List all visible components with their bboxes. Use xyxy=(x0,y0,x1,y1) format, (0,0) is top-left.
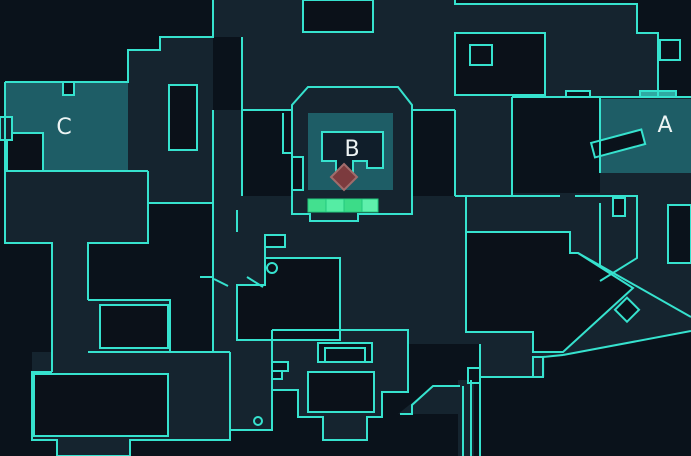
c-annex-pillar xyxy=(169,85,197,150)
walkable-area-0 xyxy=(213,0,658,110)
spawn-crate-1 xyxy=(272,362,288,371)
a-hook-box xyxy=(613,198,625,216)
alink-obstacle xyxy=(455,33,545,95)
minimap-panel: CBA xyxy=(0,0,691,456)
mid-wall-box xyxy=(265,235,285,247)
green-crate-1 xyxy=(326,199,344,212)
fountain-outer xyxy=(318,343,372,362)
walkable-area-8 xyxy=(455,110,512,196)
b-left-box xyxy=(292,157,303,190)
spawn-crate-2 xyxy=(272,371,282,379)
green-crate-3 xyxy=(362,199,378,212)
wall-line-35 xyxy=(283,113,292,153)
haven-minimap[interactable]: CBA xyxy=(0,0,691,456)
sewer-box xyxy=(468,368,480,383)
walkable-area-5 xyxy=(213,110,242,196)
midleft-obstacle xyxy=(100,305,168,348)
right-edge-bite xyxy=(668,205,691,263)
spawn-top-obstacle xyxy=(303,0,373,32)
wall-line-30 xyxy=(543,355,563,357)
spawn-lower-obstacle xyxy=(308,372,374,412)
along-step-box xyxy=(533,357,543,377)
topright-box xyxy=(660,40,680,60)
green-crate-0 xyxy=(308,199,326,212)
alink-obstacle-notch xyxy=(470,45,492,65)
walkable-area-16 xyxy=(148,171,213,203)
site-label-b: B xyxy=(344,137,359,162)
site-label-a: A xyxy=(657,113,672,138)
site-label-c: C xyxy=(56,115,71,140)
c-wall-notch xyxy=(63,82,74,95)
green-crate-2 xyxy=(344,199,362,212)
bottomleft-obstacle xyxy=(34,374,168,436)
